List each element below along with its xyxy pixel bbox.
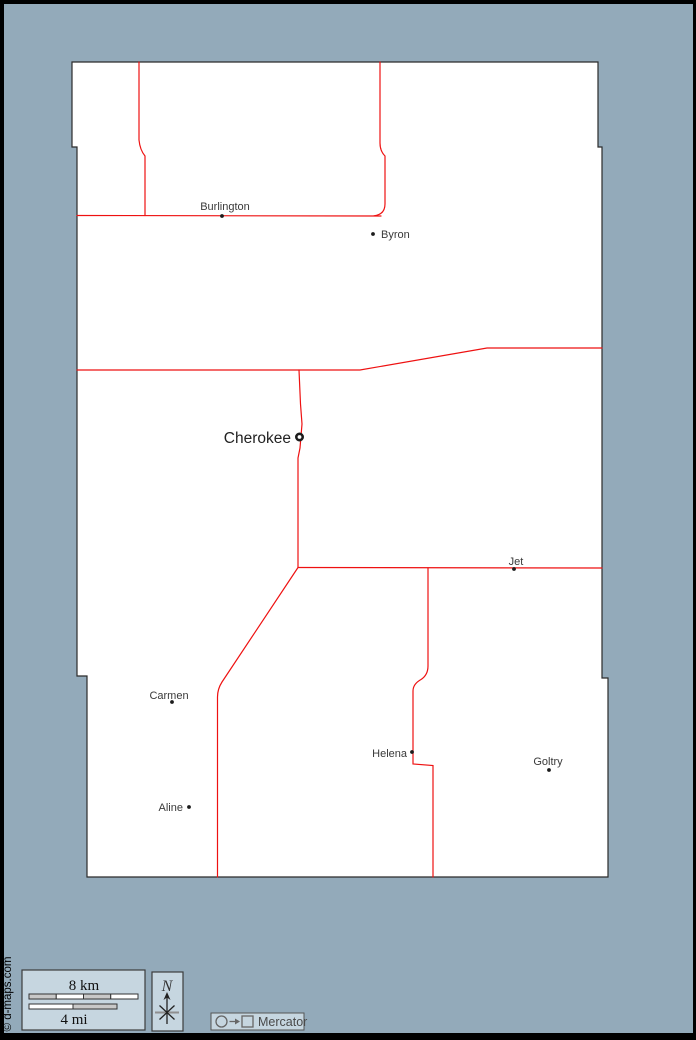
scale-bar-mi	[29, 1004, 117, 1009]
town-label: Goltry	[533, 756, 563, 768]
town-dot[interactable]	[187, 805, 191, 809]
copyright-text: © d-maps.com	[2, 957, 14, 1032]
town-label: Carmen	[149, 690, 188, 702]
scale-mi-label: 4 mi	[60, 1012, 87, 1028]
town-label: Jet	[509, 556, 524, 568]
projection-box: Mercator	[211, 1013, 307, 1030]
town-dot[interactable]	[410, 750, 414, 754]
town-label: Aline	[159, 802, 183, 814]
scale-segment	[29, 1004, 73, 1009]
scale-km-label: 8 km	[69, 978, 100, 994]
scale-segment	[56, 994, 83, 999]
projection-label: Mercator	[258, 1015, 307, 1029]
road-line	[77, 216, 381, 217]
road-line	[298, 568, 602, 569]
map-canvas: BurlingtonByronCherokeeJetCarmenHelenaGo…	[0, 0, 696, 1040]
town-dot[interactable]	[371, 232, 375, 236]
county-map-svg: BurlingtonByronCherokeeJetCarmenHelenaGo…	[0, 0, 696, 1040]
scale-bar-km	[29, 994, 138, 999]
town-label: Burlington	[200, 201, 250, 213]
county-outline[interactable]	[72, 62, 608, 877]
scale-segment	[29, 994, 56, 999]
scale-segment	[73, 1004, 117, 1009]
county-seat-marker[interactable]	[296, 434, 302, 440]
compass-box: N	[152, 972, 183, 1031]
town-label: Byron	[381, 229, 410, 241]
scale-segment	[111, 994, 138, 999]
scale-segment	[84, 994, 111, 999]
town-dot[interactable]	[220, 214, 224, 218]
town-dot[interactable]	[547, 768, 551, 772]
town-label: Cherokee	[224, 430, 291, 447]
town-label: Helena	[372, 748, 408, 760]
scale-bar-box: 8 km 4 mi	[22, 970, 145, 1030]
